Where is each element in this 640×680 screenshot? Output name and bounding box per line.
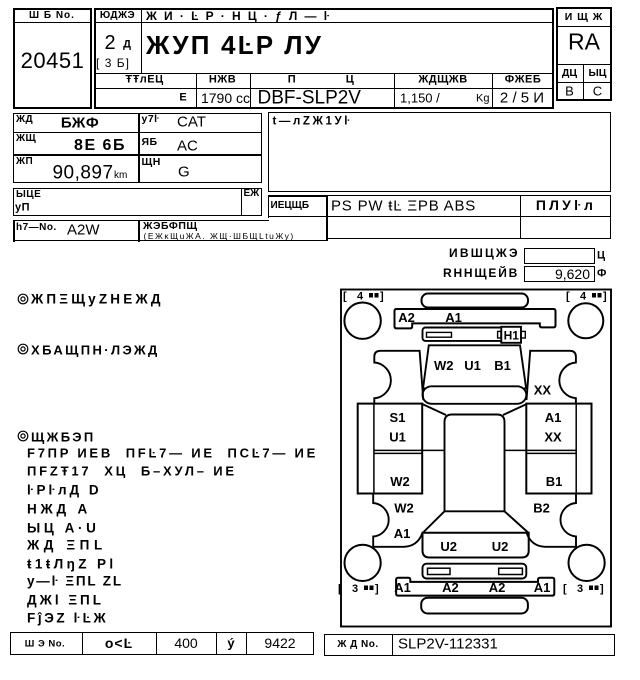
svg-text:S1: S1 xyxy=(390,410,406,425)
svg-text:XX: XX xyxy=(544,430,562,445)
svg-text:3: 3 xyxy=(352,583,358,595)
svg-text:[: [ xyxy=(563,583,567,595)
svg-text:W2: W2 xyxy=(434,358,454,373)
svg-text:[: [ xyxy=(338,583,342,595)
svg-text:]: ] xyxy=(603,291,607,303)
svg-text:B1: B1 xyxy=(494,358,511,373)
svg-text:A2: A2 xyxy=(489,580,506,595)
svg-text:A1: A1 xyxy=(445,310,462,325)
svg-text:3: 3 xyxy=(577,583,583,595)
svg-text:B2: B2 xyxy=(533,501,550,516)
svg-text:]: ] xyxy=(375,583,379,595)
svg-text:U1: U1 xyxy=(464,358,481,373)
svg-text:[: [ xyxy=(343,291,347,303)
svg-text:H1: H1 xyxy=(504,328,520,342)
svg-text:[: [ xyxy=(566,291,570,303)
svg-text:A1: A1 xyxy=(534,580,551,595)
svg-text:A2: A2 xyxy=(398,310,415,325)
svg-text:4: 4 xyxy=(580,291,587,303)
svg-text:U2: U2 xyxy=(492,539,509,554)
svg-text:A1: A1 xyxy=(545,410,562,425)
svg-text:W2: W2 xyxy=(394,501,414,516)
svg-text:4: 4 xyxy=(357,291,364,303)
svg-text:]: ] xyxy=(600,583,604,595)
svg-text:U2: U2 xyxy=(440,539,457,554)
svg-text:]: ] xyxy=(380,291,384,303)
svg-text:A1: A1 xyxy=(394,526,411,541)
svg-text:XX: XX xyxy=(534,383,552,398)
svg-text:A2: A2 xyxy=(442,580,459,595)
svg-text:U1: U1 xyxy=(389,430,406,445)
svg-text:B1: B1 xyxy=(546,474,563,489)
svg-text:W2: W2 xyxy=(390,474,410,489)
svg-text:A1: A1 xyxy=(394,580,411,595)
